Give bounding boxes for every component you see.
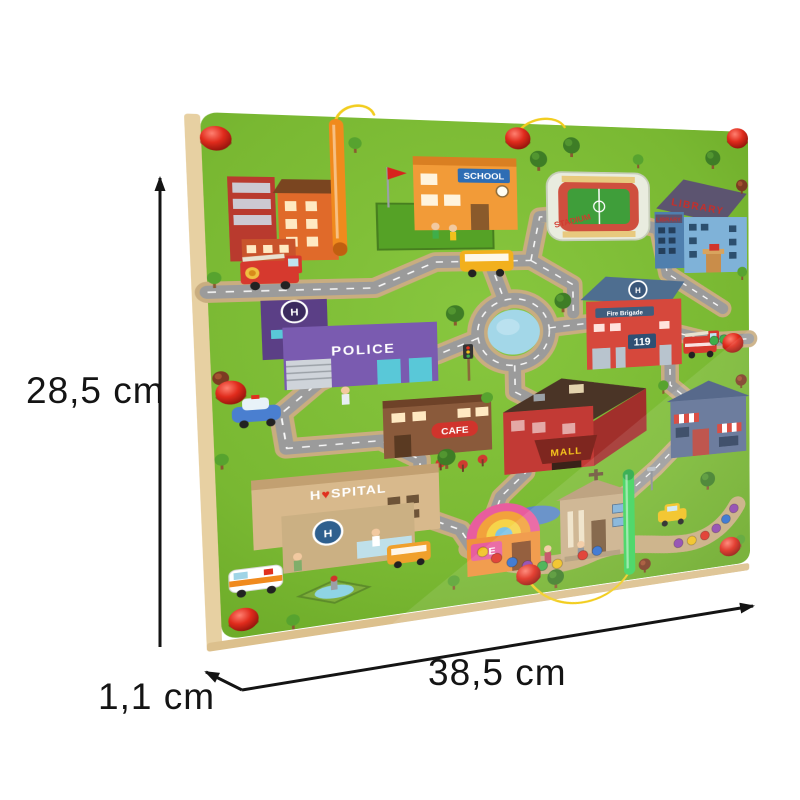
dimension-height-label: 28,5 cm <box>26 370 165 412</box>
product-photo: SCHOOL STADIUM LIBRARY <box>0 0 800 800</box>
dimension-thickness-label: 1,1 cm <box>98 676 215 718</box>
dimension-width-label: 38,5 cm <box>428 652 567 694</box>
